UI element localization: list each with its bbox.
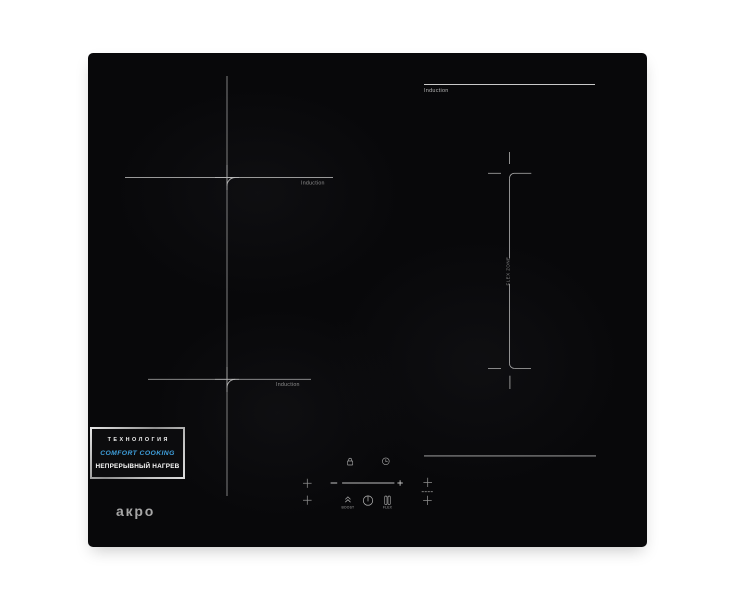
- svg-text:FLEX: FLEX: [383, 506, 393, 510]
- svg-text:Induction: Induction: [301, 180, 325, 186]
- svg-text:BOOST: BOOST: [341, 506, 354, 510]
- svg-text:FLEX ZONE: FLEX ZONE: [506, 257, 511, 286]
- svg-text:Induction: Induction: [276, 382, 300, 388]
- svg-text:Induction: Induction: [424, 88, 449, 94]
